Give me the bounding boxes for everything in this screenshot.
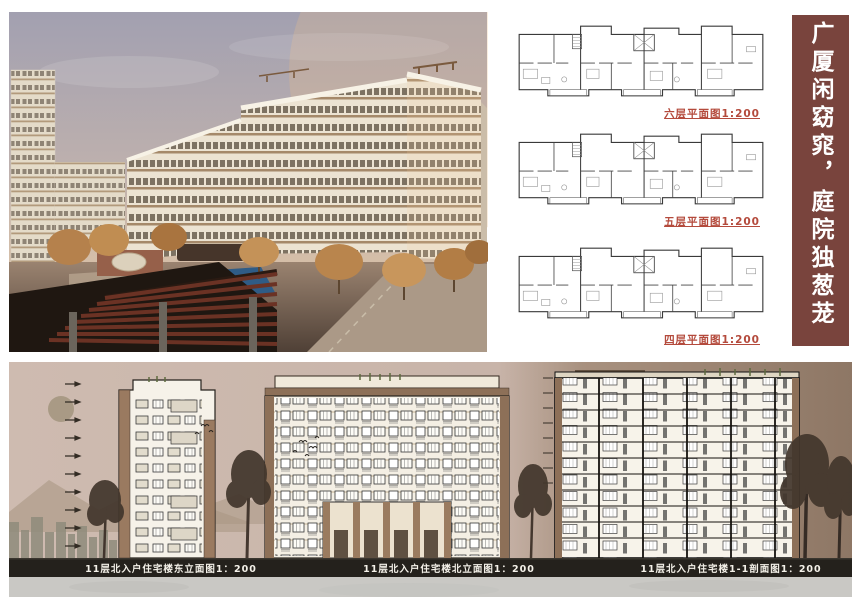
floor-plan-drawing-level4 — [512, 240, 770, 326]
elevation-label-section: 11层北入户住宅楼1-1剖面图1：200 — [640, 563, 821, 575]
floor-plan-label: 六层平面图1:200 — [664, 106, 760, 121]
floor-plans-panel: 六层平面图1:200 五层平面图1:200 四层平面图1:200 — [498, 12, 788, 358]
elevation-label-east: 11层北入户住宅楼东立面图1：200 — [85, 563, 257, 575]
elevations-graphic: 11层北入户住宅楼东立面图1：200 11层北入户住宅楼北立面图1：200 11… — [9, 362, 852, 597]
elevation-north — [265, 373, 509, 558]
elevation-east-tower — [119, 376, 215, 558]
rendering-perspective-view — [8, 12, 488, 352]
floor-plan-label: 四层平面图1:200 — [664, 332, 760, 347]
moon-icon — [48, 396, 74, 422]
floor-plan-label: 五层平面图1:200 — [664, 214, 760, 229]
stone-plaque — [112, 253, 146, 271]
floor-plan-drawing-level6 — [512, 18, 770, 104]
floor-plan-drawing-level5 — [512, 126, 770, 212]
elevations-panel: 11层北入户住宅楼东立面图1：200 11层北入户住宅楼北立面图1：200 11… — [9, 362, 852, 597]
entrance-arcade — [323, 502, 451, 558]
concrete-strip — [9, 577, 852, 597]
rendering-graphic — [8, 12, 488, 352]
title-banner-calligraphy: 广厦闲窈窕，庭院独葱茏 — [792, 15, 849, 346]
presentation-board: 六层平面图1:200 五层平面图1:200 四层平面图1:200 广厦闲窈窕，庭… — [0, 0, 860, 606]
section-1-1 — [555, 368, 799, 558]
elevation-label-north: 11层北入户住宅楼北立面图1：200 — [363, 563, 535, 575]
